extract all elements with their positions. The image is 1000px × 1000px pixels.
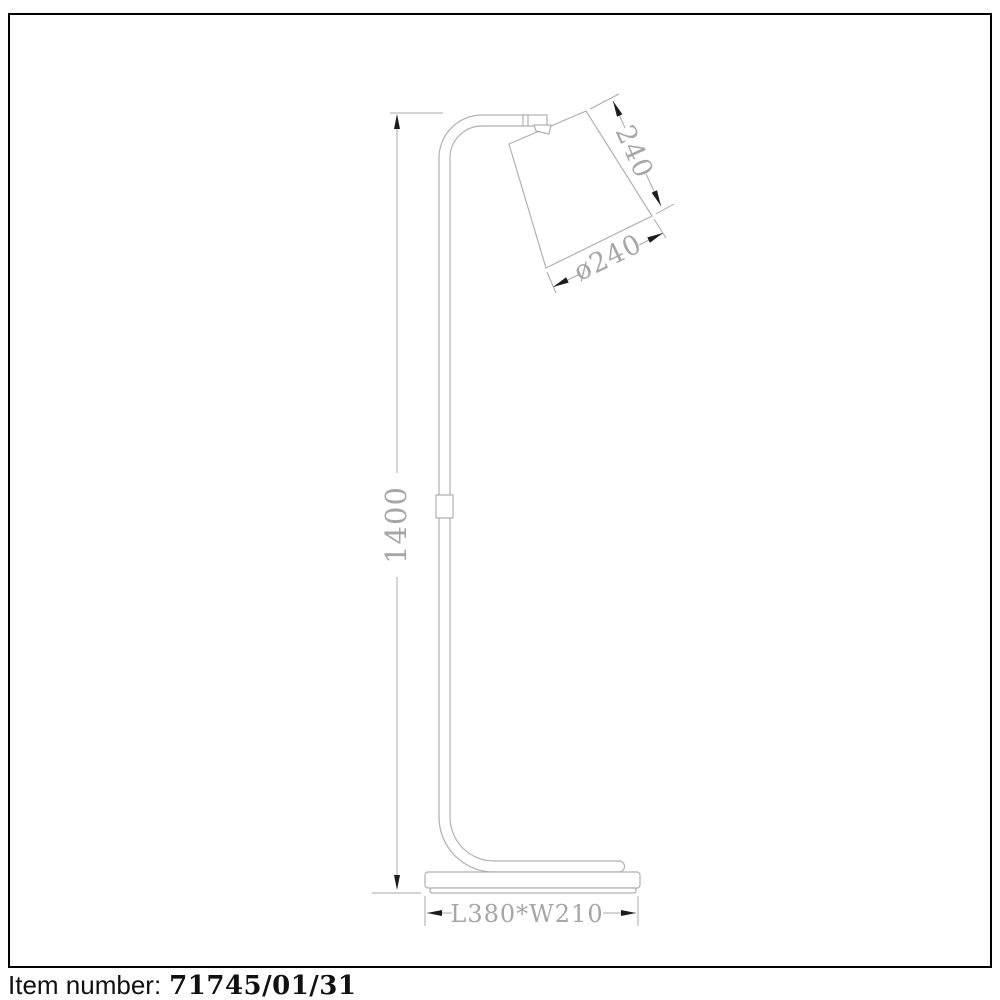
pole-inner-edge xyxy=(450,126,547,817)
foot-end-cap xyxy=(619,861,625,872)
lamp-outline xyxy=(425,111,652,893)
base-plate-lip xyxy=(430,888,636,893)
base-arrow-left xyxy=(427,910,442,916)
shade-dia-arrow-right xyxy=(647,233,663,243)
item-number-row: Item number:71745/01/31 xyxy=(8,970,356,1000)
pole-outer-edge xyxy=(439,115,547,817)
shade-dia-ext-line-left xyxy=(547,272,556,293)
page: 1400 240 ø240 L380*W210 Item number:7174… xyxy=(0,0,1000,1000)
height-dim-label: 1400 xyxy=(379,486,413,564)
item-number-value: 71745/01/31 xyxy=(169,971,356,1000)
height-arrow-down xyxy=(394,875,400,890)
pole-connector-joint xyxy=(436,495,453,518)
base-dim-label: L380*W210 xyxy=(450,900,603,928)
shade-side-arrow-bottom xyxy=(652,190,661,206)
floor-lamp-technical-drawing: 1400 240 ø240 L380*W210 xyxy=(0,0,1000,1000)
shade-dia-arrow-left xyxy=(553,277,569,287)
height-arrow-up xyxy=(394,114,400,129)
dimension-labels: 1400 240 ø240 L380*W210 xyxy=(379,121,659,928)
base-arrow-right xyxy=(621,910,636,916)
shade-side-arrow-top xyxy=(613,101,622,117)
shade-side-ext-line-bottom xyxy=(656,204,674,214)
foot-bottom-edge xyxy=(439,817,619,872)
base-plate xyxy=(425,872,640,888)
foot-top-edge xyxy=(450,817,619,861)
item-number-label: Item number: xyxy=(8,970,161,1000)
